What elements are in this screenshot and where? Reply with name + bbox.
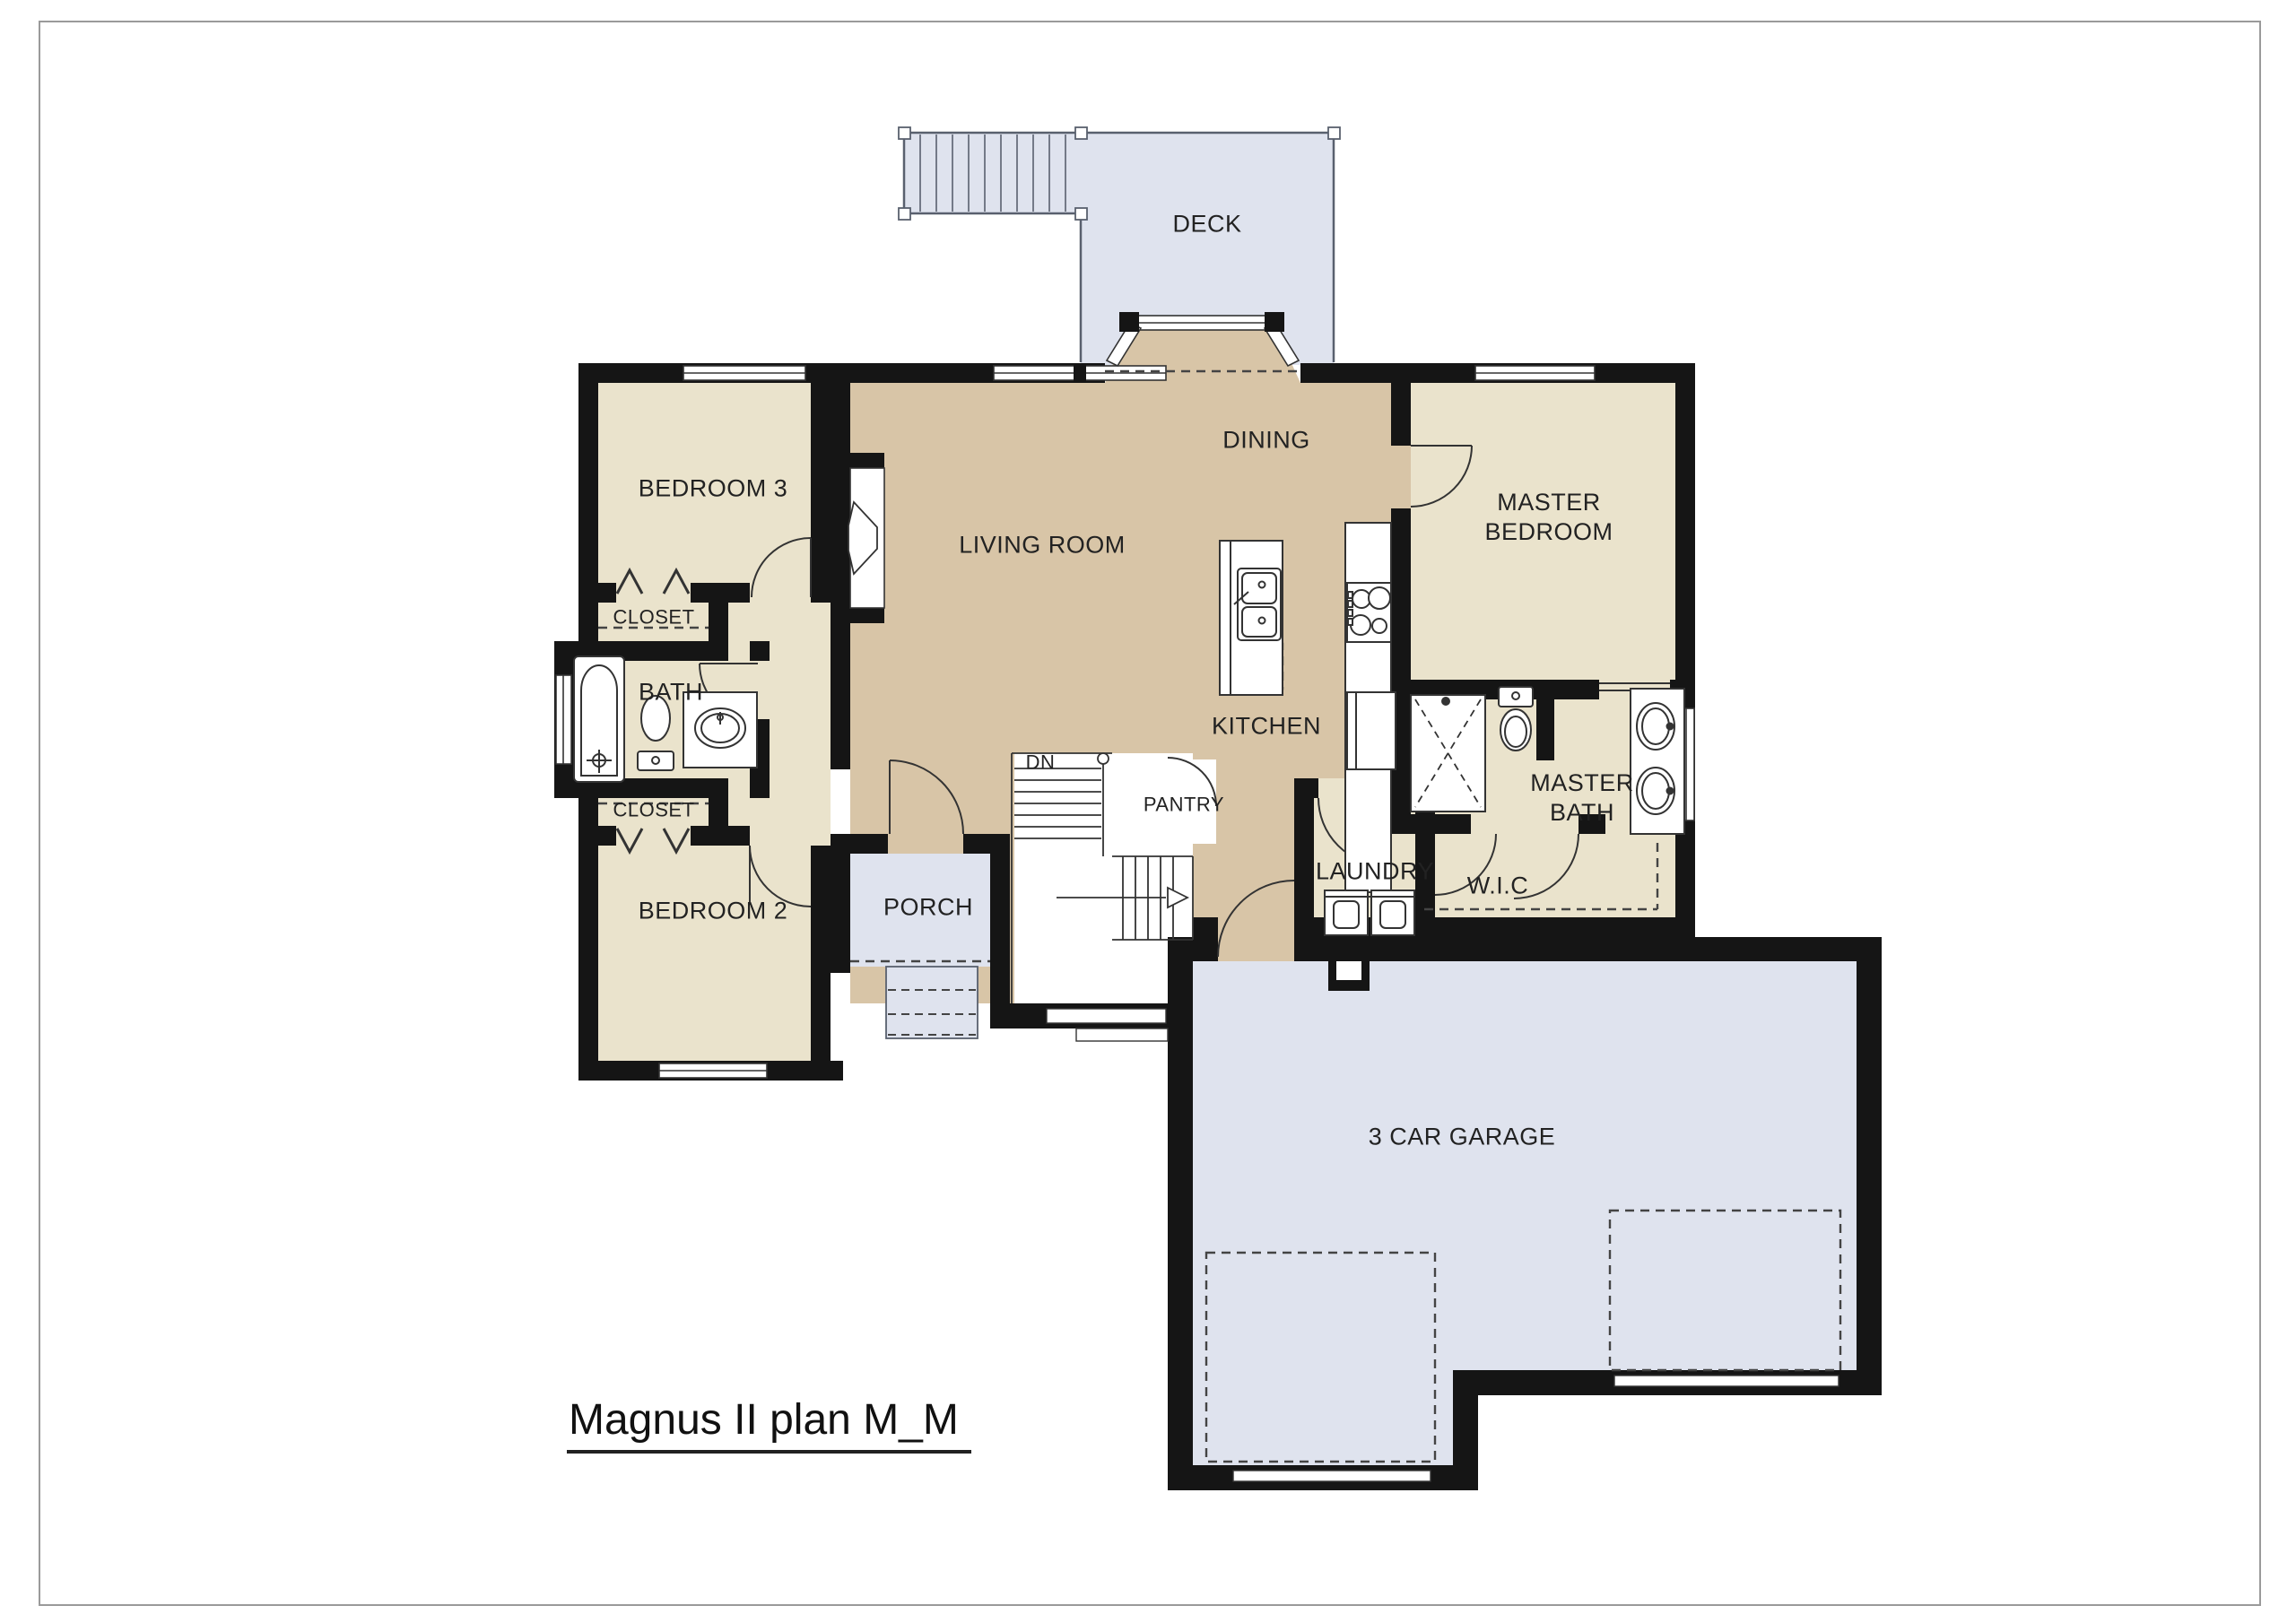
floor-plan-page: DECK BEDROOM 3 CLOSET BATH CLOSET BEDROO… [0, 0, 2296, 1623]
label-wic: W.I.C [1467, 872, 1529, 901]
label-bath: BATH [639, 678, 703, 707]
label-kitchen: KITCHEN [1212, 712, 1321, 742]
label-master-bedroom: MASTER BEDROOM [1484, 488, 1613, 547]
plan-title: Magnus II plan M_M [567, 1395, 971, 1454]
garage-post-notch [1336, 961, 1361, 980]
label-closet-top: CLOSET [613, 606, 694, 630]
label-bedroom3: BEDROOM 3 [639, 474, 788, 504]
window-center-post [1074, 364, 1086, 382]
label-dining: DINING [1222, 426, 1310, 456]
label-pantry: PANTRY [1144, 794, 1224, 818]
label-bedroom2: BEDROOM 2 [639, 897, 788, 926]
fireplace [848, 453, 884, 623]
label-garage: 3 CAR GARAGE [1369, 1123, 1556, 1152]
label-stairs-dn: DN [1026, 751, 1056, 776]
label-porch: PORCH [883, 893, 973, 923]
label-deck: DECK [1172, 210, 1241, 239]
label-living-room: LIVING ROOM [959, 531, 1126, 560]
porch-steps [886, 967, 978, 1038]
label-closet-bottom: CLOSET [613, 799, 694, 823]
label-master-bath: MASTER BATH [1530, 768, 1634, 828]
label-laundry: LAUNDRY [1316, 857, 1434, 887]
